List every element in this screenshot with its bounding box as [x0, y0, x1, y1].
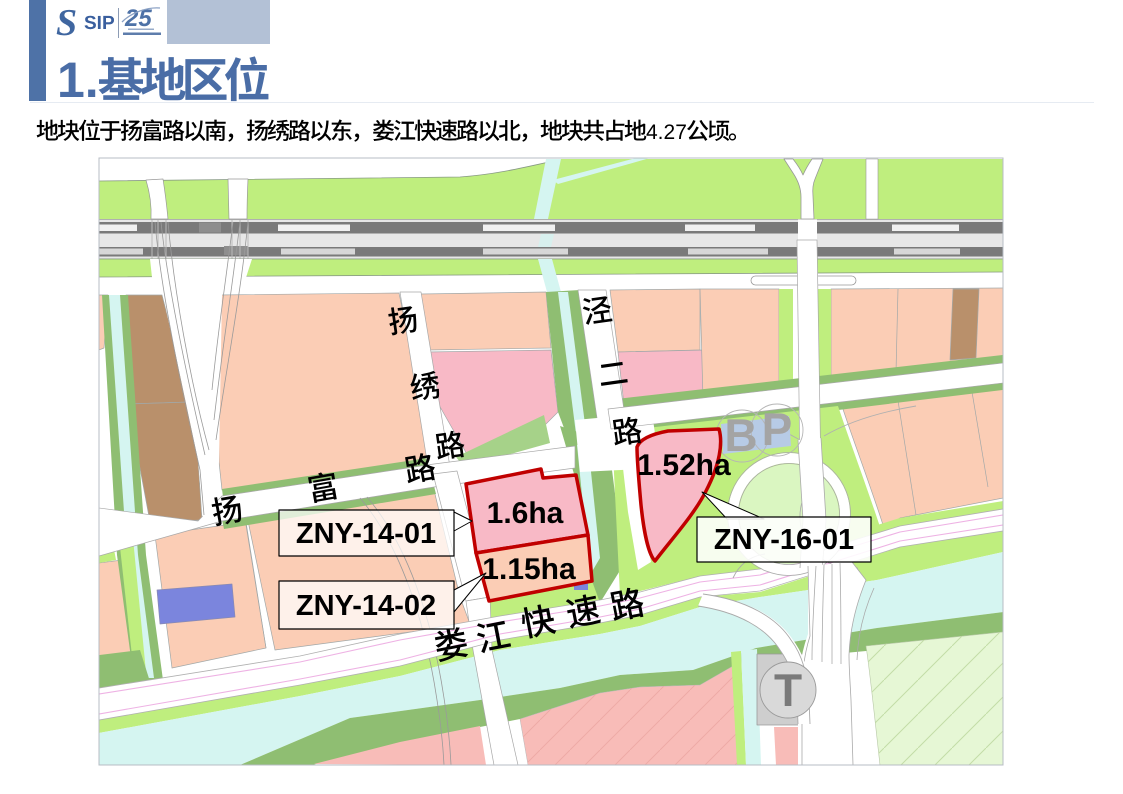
- svg-text:ZNY-16-01: ZNY-16-01: [714, 524, 854, 556]
- svg-text:T: T: [774, 664, 802, 716]
- svg-text:1.15ha: 1.15ha: [482, 553, 576, 586]
- svg-text:SIP: SIP: [84, 13, 115, 34]
- svg-text:P: P: [762, 403, 793, 455]
- svg-text:ZNY-14-02: ZNY-14-02: [296, 590, 436, 622]
- svg-text:ZNY-14-01: ZNY-14-01: [296, 518, 436, 550]
- svg-text:S: S: [56, 2, 77, 44]
- svg-text:1.: 1.: [57, 52, 99, 108]
- svg-text:4.27: 4.27: [646, 121, 687, 144]
- svg-text:1.6ha: 1.6ha: [487, 497, 564, 530]
- svg-text:1.52ha: 1.52ha: [637, 449, 731, 482]
